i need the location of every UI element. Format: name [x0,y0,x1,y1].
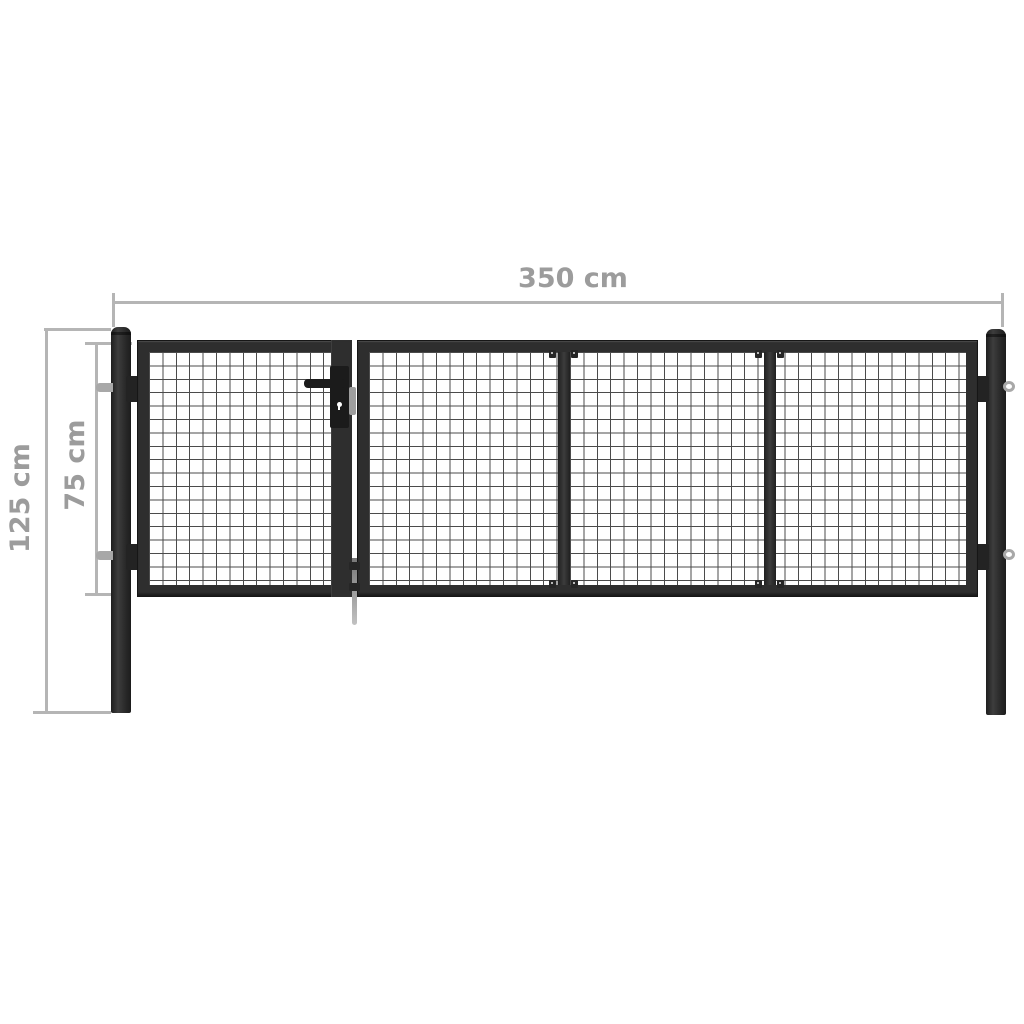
hinge-bolt-upper-left [96,383,113,392]
hinge-eye-bolt-lower-right [1003,549,1015,560]
mesh-clip [549,350,556,358]
mesh-clip [755,350,762,358]
support-bar-right [764,352,776,585]
mesh-clip [571,580,578,588]
pedestrian-gate-panel [137,340,352,597]
main-gate-mesh [369,352,966,585]
mesh-clip [777,580,784,588]
product-diagram: 350 cm 125 cm 75 cm [0,0,1024,1024]
support-bar-left [558,352,570,585]
total-height-dimension-line [45,330,48,713]
mesh-clip [571,350,578,358]
gate-lock [330,366,349,428]
gate-handle [304,379,344,388]
total-height-dimension-tick-top [44,328,111,331]
hinge-bolt-lower-left [96,551,113,560]
width-dimension-label: 350 cm [493,262,653,296]
total-height-dimension-tick-bottom [33,711,111,714]
latch-keeper [349,387,356,415]
hinge-eye-bolt-upper-right [1003,381,1015,392]
mesh-clip [755,580,762,588]
total-height-dimension-label: 125 cm [4,418,38,578]
main-gate-panel [357,340,978,597]
drop-rod-clamp-upper [349,562,360,570]
mesh-clip [777,350,784,358]
width-dimension-tick-left [112,293,115,327]
width-dimension-tick-right [1001,293,1004,327]
width-dimension-line [113,301,1003,304]
lock-keyhole [337,402,342,407]
drop-rod-clamp-lower [349,583,360,591]
gate-height-dimension-label: 75 cm [59,385,93,545]
mesh-clip [549,580,556,588]
